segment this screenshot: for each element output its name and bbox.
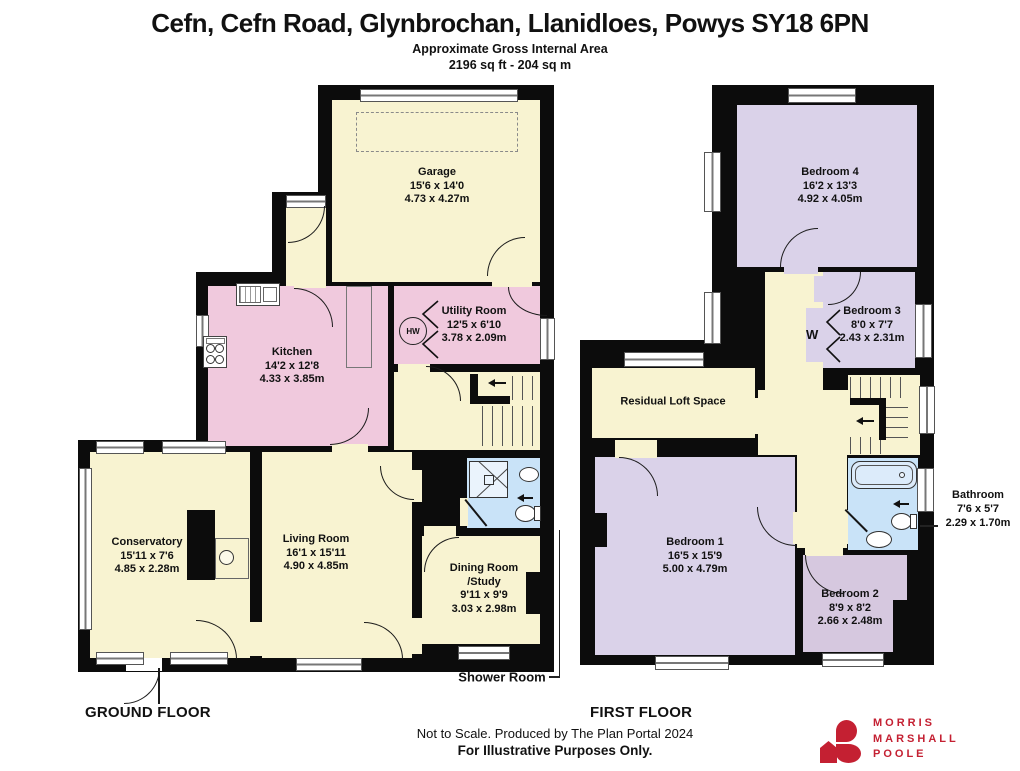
room-imperial: 15'11 x 7'6 [112, 549, 183, 563]
shower-drain [484, 475, 494, 485]
room-name: Living Room [283, 533, 350, 547]
window [919, 386, 935, 434]
logo-line: MARSHALL [873, 732, 959, 748]
window [162, 441, 226, 454]
door-opening [332, 444, 368, 453]
kitchen-sink-icon [236, 283, 280, 306]
door-opening [814, 276, 826, 302]
window [704, 152, 721, 212]
landing [758, 390, 848, 455]
mmp-logo-icon [836, 744, 861, 763]
hw-label: HW [406, 327, 419, 336]
room-metric: 4.73 x 4.27m [405, 193, 470, 207]
room-name: Kitchen [260, 346, 325, 360]
door-opening [840, 510, 848, 544]
door-opening [424, 526, 456, 537]
window [917, 468, 934, 512]
room-metric: 3.78 x 2.09m [442, 332, 507, 346]
stove-ring [219, 550, 234, 565]
burner [206, 344, 215, 353]
bedroom2-label: Bedroom 2 8'9 x 8'2 2.66 x 2.48m [818, 588, 883, 629]
stair-wall [879, 398, 886, 440]
pointer-arrow-icon [899, 503, 909, 505]
stairs [512, 376, 540, 400]
basin-icon [866, 531, 892, 548]
toilet-cistern [910, 514, 917, 529]
stairs-down-arrow-icon [862, 420, 874, 422]
mmp-logo-icon [820, 741, 837, 763]
room-name: Utility Room [442, 305, 507, 319]
room-metric: 2.43 x 2.31m [840, 332, 905, 346]
area-text: 2196 sq ft - 204 sq m [0, 58, 1020, 72]
mmp-logo-icon [836, 720, 857, 742]
room-imperial: 7'6 x 5'7 [946, 502, 1011, 516]
loft-label: Residual Loft Space [620, 395, 725, 409]
room-metric: 3.03 x 2.98m [450, 603, 518, 617]
room-metric: 4.33 x 3.85m [260, 373, 325, 387]
burner [215, 355, 224, 364]
window [822, 653, 884, 667]
window [788, 88, 856, 103]
door-leaf [158, 668, 160, 704]
label-connector [559, 530, 561, 677]
window [458, 646, 510, 660]
floorplan-page: Cefn, Cefn Road, Glynbrochan, Llanidloes… [0, 0, 1020, 771]
bathroom-label: Bathroom 7'6 x 5'7 2.29 x 1.70m [946, 488, 1011, 530]
wall [526, 572, 540, 614]
room-name2: /Study [450, 576, 518, 590]
room-imperial: 16'2 x 13'3 [798, 179, 863, 193]
window [540, 318, 555, 360]
window [624, 352, 704, 367]
window [296, 658, 362, 671]
window [704, 292, 721, 344]
room-imperial: 16'1 x 15'11 [283, 546, 350, 560]
room-name: Garage [405, 166, 470, 180]
header: Cefn, Cefn Road, Glynbrochan, Llanidloes… [0, 8, 1020, 72]
logo-line: MORRIS [873, 716, 959, 732]
room-imperial: 8'9 x 8'2 [818, 601, 883, 615]
room-metric: 2.29 x 1.70m [946, 516, 1011, 530]
conservatory-label: Conservatory 15'11 x 7'6 4.85 x 2.28m [112, 536, 183, 577]
room-name: Bathroom [946, 488, 1011, 502]
room-name: Bedroom 4 [798, 166, 863, 180]
room-metric: 5.00 x 4.79m [663, 563, 728, 577]
room-name: Bedroom 1 [663, 536, 728, 550]
room-imperial: 14'2 x 12'8 [260, 359, 325, 373]
room-imperial: 15'6 x 14'0 [405, 179, 470, 193]
room-metric: 4.90 x 4.85m [283, 560, 350, 574]
bath-icon [851, 461, 917, 489]
hob-panel [206, 338, 225, 344]
garage-label: Garage 15'6 x 14'0 4.73 x 4.27m [405, 166, 470, 207]
ground-floor-label: GROUND FLOOR [85, 704, 211, 721]
room-name: Residual Loft Space [620, 395, 725, 409]
stairs [482, 406, 540, 446]
shower-room-label: Shower Room [458, 670, 545, 685]
first-floor-label: FIRST FLOOR [590, 704, 692, 721]
bedroom3-label: Bedroom 3 8'0 x 7'7 2.43 x 2.31m [840, 305, 905, 346]
stove-icon [215, 538, 249, 579]
dining-room-label: Dining Room /Study 9'11 x 9'9 3.03 x 2.9… [450, 562, 518, 616]
room-name: Bedroom 2 [818, 588, 883, 602]
utility-label: Utility Room 12'5 x 6'10 3.78 x 2.09m [442, 305, 507, 346]
window [655, 656, 729, 670]
bedroom1-label: Bedroom 1 16'5 x 15'9 5.00 x 4.79m [663, 536, 728, 577]
door-opening [250, 622, 262, 656]
kitchen-counter [346, 286, 372, 368]
window [96, 441, 144, 454]
room-imperial: 16'5 x 15'9 [663, 549, 728, 563]
hob-icon [203, 336, 227, 368]
window [96, 652, 144, 665]
footer-note-2: For Illustrative Purposes Only. [458, 743, 653, 758]
room-metric: 2.66 x 2.48m [818, 615, 883, 629]
door-opening [753, 398, 771, 434]
stair-wall [470, 396, 510, 404]
stairs-up-arrow-icon [494, 382, 506, 384]
mmp-logo-text: MORRIS MARSHALL POOLE [873, 716, 959, 763]
garage-door-dashed-icon [356, 112, 518, 152]
logo-line: POOLE [873, 747, 959, 763]
shower-tray-icon [469, 461, 508, 498]
draining-board [239, 286, 261, 303]
toilet-icon [891, 513, 912, 530]
chimney-breast [187, 510, 215, 580]
sink-bowl [263, 287, 277, 302]
room-name: Conservatory [112, 536, 183, 550]
door-opening [412, 618, 422, 654]
door-arc [124, 668, 160, 704]
pointer-arrow-icon [523, 497, 533, 499]
room-name: Bedroom 3 [840, 305, 905, 319]
wardrobe-label: W [806, 327, 818, 342]
door-opening [615, 440, 657, 458]
stairs [850, 377, 904, 398]
room-imperial: 12'5 x 6'10 [442, 318, 507, 332]
basin-icon [519, 467, 539, 482]
stairs [884, 404, 908, 438]
window [79, 468, 92, 630]
room-metric: 4.85 x 2.28m [112, 563, 183, 577]
door-opening [492, 280, 532, 287]
mmp-logo: MORRIS MARSHALL POOLE [820, 712, 1010, 767]
kitchen-label: Kitchen 14'2 x 12'8 4.33 x 3.85m [260, 346, 325, 387]
window [915, 304, 932, 358]
hot-water-cylinder-icon: HW [399, 317, 427, 345]
page-title: Cefn, Cefn Road, Glynbrochan, Llanidloes… [0, 8, 1020, 39]
room-imperial: 9'11 x 9'9 [450, 589, 518, 603]
wall [893, 600, 920, 652]
footer-note-1: Not to Scale. Produced by The Plan Porta… [417, 726, 694, 741]
toilet-icon [515, 505, 536, 522]
room-metric: 4.92 x 4.05m [798, 193, 863, 207]
living-room-label: Living Room 16'1 x 15'11 4.90 x 4.85m [283, 533, 350, 574]
label-connector [920, 525, 938, 527]
toilet-cistern [534, 506, 541, 521]
room-imperial: 8'0 x 7'7 [840, 318, 905, 332]
bath-tap [899, 472, 905, 478]
room-name: Dining Room [450, 562, 518, 576]
burner [215, 344, 224, 353]
burner [206, 355, 215, 364]
bedroom4-label: Bedroom 4 16'2 x 13'3 4.92 x 4.05m [798, 166, 863, 207]
subtitle: Approximate Gross Internal Area [0, 42, 1020, 56]
door-opening [294, 272, 326, 288]
chimney-breast [595, 513, 607, 547]
window [360, 89, 518, 102]
